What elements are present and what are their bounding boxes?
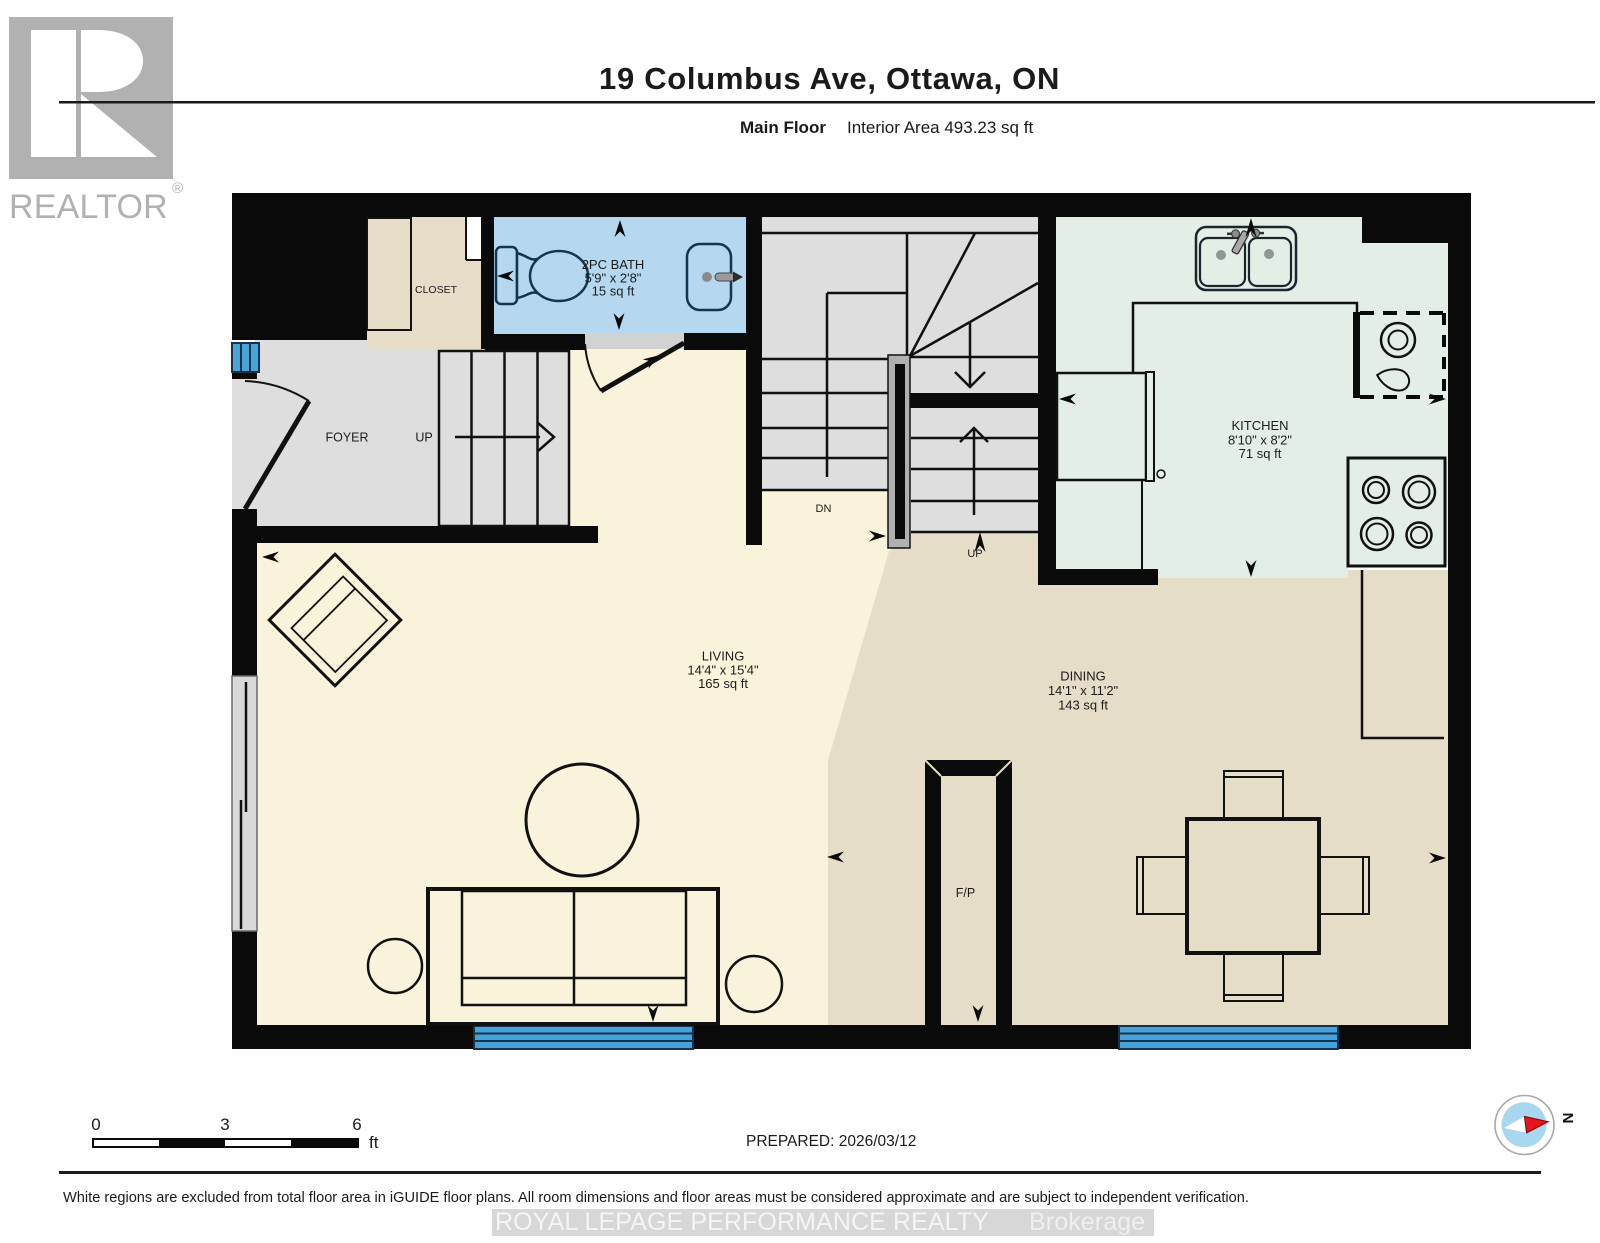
svg-text:Interior Area 493.23 sq ft: Interior Area 493.23 sq ft <box>847 118 1033 137</box>
svg-text:PREPARED: 2026/03/12: PREPARED: 2026/03/12 <box>746 1133 916 1150</box>
svg-text:3: 3 <box>220 1115 229 1134</box>
svg-text:6: 6 <box>352 1115 361 1134</box>
svg-text:143 sq ft: 143 sq ft <box>1058 698 1108 713</box>
svg-text:KITCHEN: KITCHEN <box>1231 418 1288 433</box>
svg-text:14'1" x 11'2": 14'1" x 11'2" <box>1048 683 1119 698</box>
svg-text:Brokerage: Brokerage <box>1029 1208 1145 1236</box>
svg-text:0: 0 <box>91 1115 100 1134</box>
svg-text:F/P: F/P <box>956 886 975 900</box>
svg-text:ft: ft <box>369 1133 379 1152</box>
svg-text:ROYAL LEPAGE PERFORMANCE REALT: ROYAL LEPAGE PERFORMANCE REALTY <box>495 1208 989 1236</box>
svg-text:Main Floor: Main Floor <box>740 118 826 137</box>
svg-text:White regions are excluded fro: White regions are excluded from total fl… <box>63 1190 1249 1206</box>
svg-text:FOYER: FOYER <box>325 431 368 445</box>
svg-text:N: N <box>1559 1113 1576 1124</box>
svg-text:REALTOR: REALTOR <box>9 188 168 226</box>
svg-text:165 sq ft: 165 sq ft <box>698 676 748 691</box>
svg-text:®: ® <box>172 180 183 197</box>
svg-text:DN: DN <box>816 503 832 515</box>
svg-text:CLOSET: CLOSET <box>415 284 458 296</box>
svg-text:DINING: DINING <box>1060 669 1106 684</box>
svg-text:71 sq ft: 71 sq ft <box>1239 446 1282 461</box>
svg-text:15 sq ft: 15 sq ft <box>592 284 635 299</box>
svg-text:LIVING: LIVING <box>702 649 745 664</box>
svg-text:UP: UP <box>967 548 982 560</box>
svg-text:19 Columbus Ave, Ottawa, ON: 19 Columbus Ave, Ottawa, ON <box>599 61 1060 96</box>
svg-text:UP: UP <box>415 431 432 445</box>
